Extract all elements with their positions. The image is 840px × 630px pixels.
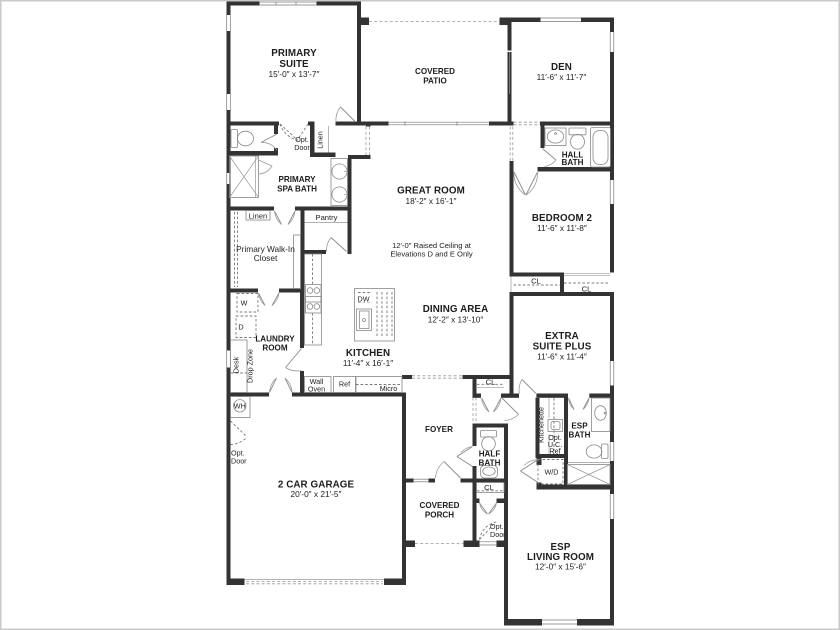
svg-text:Micro: Micro xyxy=(380,384,398,393)
svg-text:Door: Door xyxy=(231,457,247,466)
svg-text:11′-4″ x 16′-1″: 11′-4″ x 16′-1″ xyxy=(343,358,393,368)
svg-text:BATH: BATH xyxy=(562,158,584,167)
svg-text:FOYER: FOYER xyxy=(425,425,453,434)
svg-text:DW: DW xyxy=(358,295,370,304)
svg-text:COVERED: COVERED xyxy=(415,67,455,76)
svg-text:Linen: Linen xyxy=(249,212,268,221)
svg-text:11′-6″ x 11′-4″: 11′-6″ x 11′-4″ xyxy=(537,352,587,362)
svg-text:Door: Door xyxy=(294,143,310,152)
svg-text:PATIO: PATIO xyxy=(423,77,447,86)
svg-text:Closet: Closet xyxy=(254,253,278,263)
svg-text:Ref: Ref xyxy=(549,447,560,456)
svg-text:CL: CL xyxy=(484,483,494,492)
svg-text:W: W xyxy=(241,299,248,308)
svg-text:18′-2″ x 16′-1″: 18′-2″ x 16′-1″ xyxy=(406,196,457,206)
svg-text:CL: CL xyxy=(531,277,541,286)
svg-text:Ref: Ref xyxy=(339,380,350,389)
svg-text:Drop Zone: Drop Zone xyxy=(246,349,255,383)
svg-text:PORCH: PORCH xyxy=(425,511,454,520)
svg-text:11′-6″ x 11′-8″: 11′-6″ x 11′-8″ xyxy=(537,223,587,233)
svg-text:ESP: ESP xyxy=(571,422,588,431)
svg-text:ROOM: ROOM xyxy=(262,344,287,353)
svg-text:11′-6″ x 11′-7″: 11′-6″ x 11′-7″ xyxy=(537,72,587,82)
svg-text:LAUNDRY: LAUNDRY xyxy=(255,335,295,344)
svg-text:Kitchenette: Kitchenette xyxy=(537,407,546,443)
svg-text:HALF: HALF xyxy=(479,450,501,459)
svg-text:20′-0″ x 21′-5″: 20′-0″ x 21′-5″ xyxy=(291,489,342,499)
svg-text:GREAT ROOM: GREAT ROOM xyxy=(397,186,465,197)
svg-text:Pantry: Pantry xyxy=(316,213,338,222)
svg-text:Oven: Oven xyxy=(308,385,325,394)
svg-text:EXTRA: EXTRA xyxy=(545,331,579,342)
svg-text:BATH: BATH xyxy=(479,459,501,468)
svg-text:COVERED: COVERED xyxy=(419,501,459,510)
svg-text:CL: CL xyxy=(486,378,496,387)
svg-text:PRIMARY: PRIMARY xyxy=(278,175,316,184)
svg-text:Door: Door xyxy=(490,530,506,539)
svg-text:Linen: Linen xyxy=(316,131,325,149)
svg-text:W/D: W/D xyxy=(545,468,559,477)
svg-text:12′-0″ x 15′-6″: 12′-0″ x 15′-6″ xyxy=(535,562,586,572)
svg-text:15′-0″ x 13′-7″: 15′-0″ x 13′-7″ xyxy=(269,69,320,79)
svg-text:CL: CL xyxy=(582,285,592,294)
svg-text:WH: WH xyxy=(234,401,246,410)
svg-text:D: D xyxy=(238,323,243,332)
svg-text:BATH: BATH xyxy=(569,431,591,440)
svg-text:PRIMARY: PRIMARY xyxy=(271,48,317,59)
svg-text:Desk: Desk xyxy=(232,356,241,373)
svg-text:DINING AREA: DINING AREA xyxy=(423,304,489,315)
svg-text:SPA BATH: SPA BATH xyxy=(277,185,317,194)
svg-text:12′-2″ x 13′-10″: 12′-2″ x 13′-10″ xyxy=(428,315,484,325)
svg-text:Elevations D and E Only: Elevations D and E Only xyxy=(390,250,473,259)
